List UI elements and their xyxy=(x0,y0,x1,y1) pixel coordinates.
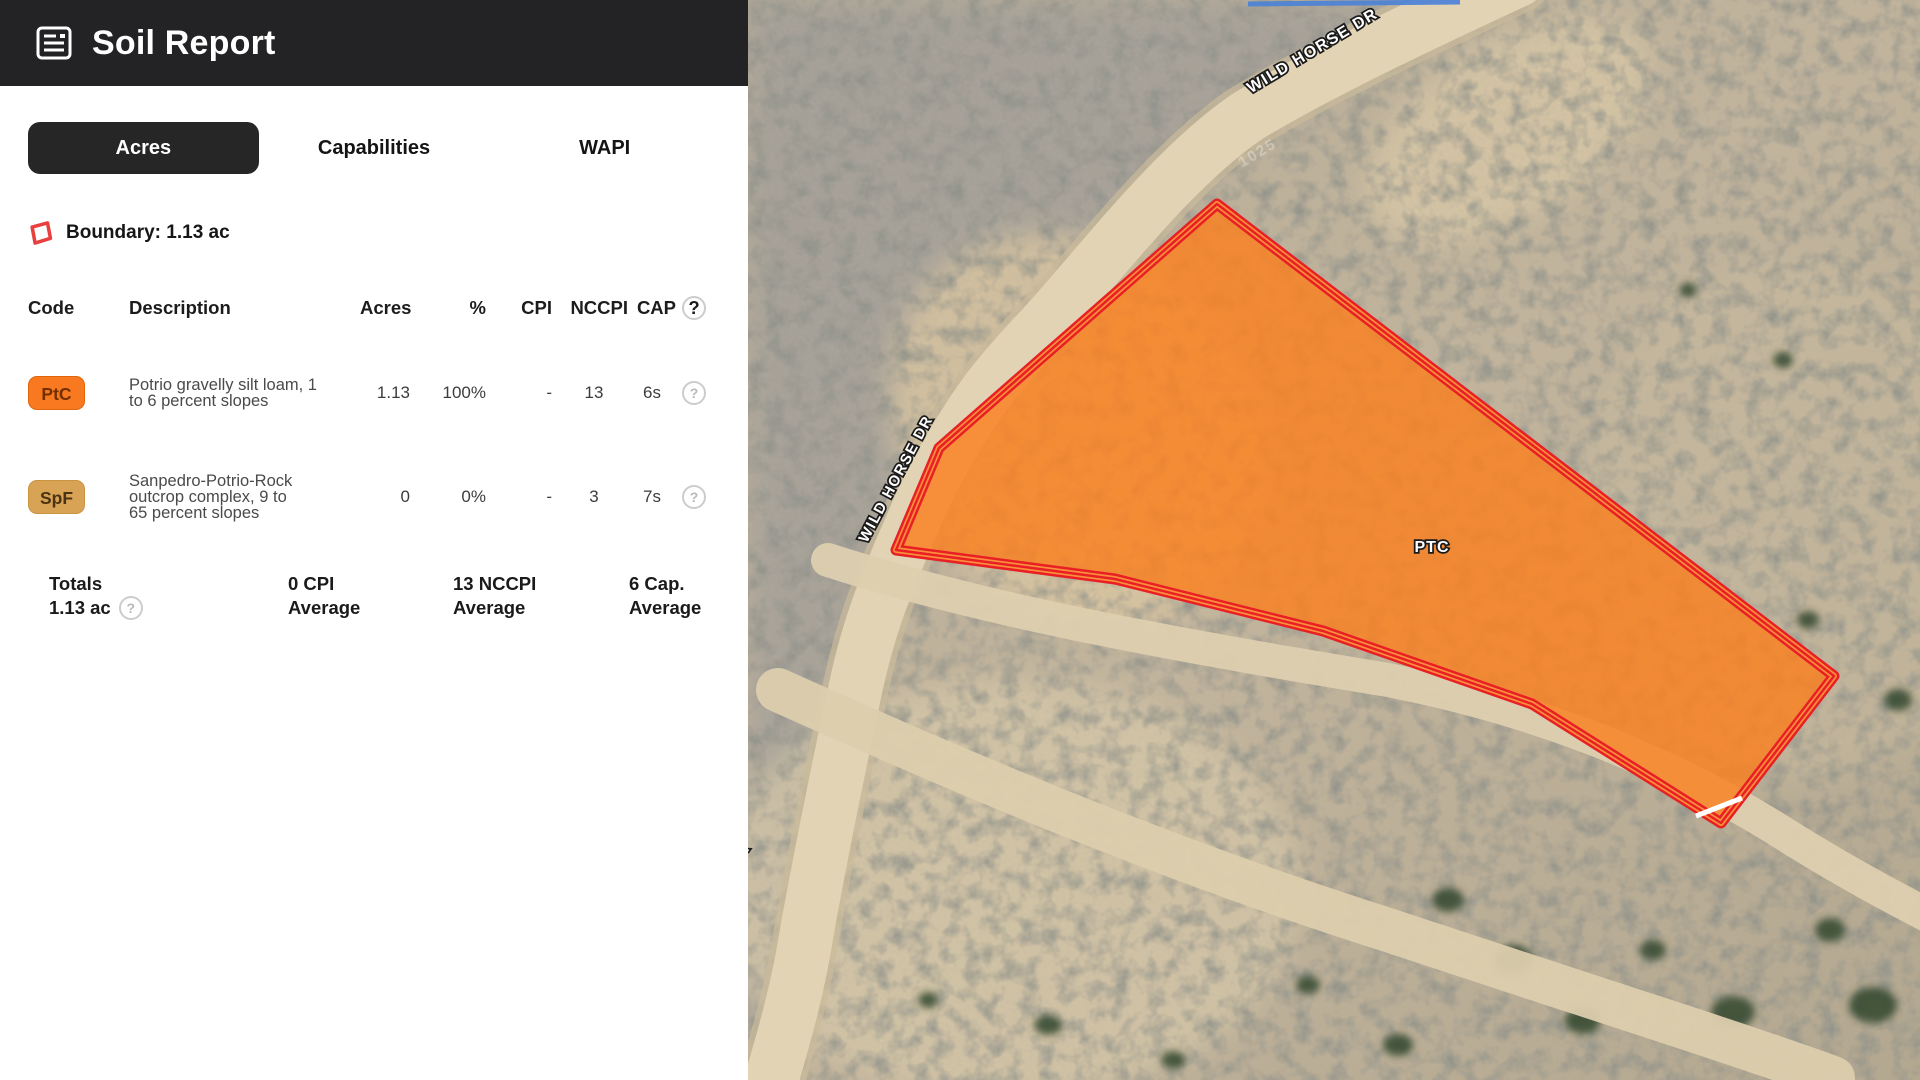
col-acres: Acres xyxy=(360,297,410,319)
acres-value: 0 xyxy=(360,487,410,507)
report-icon xyxy=(34,23,74,63)
col-percent: % xyxy=(410,297,486,319)
soil-description: Sanpedro-Potrio-Rock outcrop complex, 9 … xyxy=(120,473,301,521)
totals-acres-value: 1.13 ac xyxy=(49,596,111,620)
col-code: Code xyxy=(28,297,120,319)
soil-report-panel: Soil Report Acres Capabilities WAPI Boun… xyxy=(0,0,748,1080)
totals-cap-average: 6 Cap. Average xyxy=(629,572,713,620)
tab-capabilities[interactable]: Capabilities xyxy=(259,122,490,174)
panel-header: Soil Report xyxy=(0,0,748,86)
totals-cpi-average: 0 CPI Average xyxy=(288,572,372,620)
soil-description: Potrio gravelly silt loam, 1 to 6 percen… xyxy=(120,377,334,409)
cpi-value: - xyxy=(486,383,560,403)
totals-label: Totals xyxy=(49,572,143,596)
row-help-icon[interactable]: ? xyxy=(682,381,706,405)
cap-value: 7s xyxy=(628,487,676,507)
cap-value: 6s xyxy=(628,383,676,403)
tab-wapi[interactable]: WAPI xyxy=(489,122,720,174)
soil-code-badge-spf: SpF xyxy=(28,480,85,514)
totals-nccpi-average: 13 NCCPI Average xyxy=(453,572,549,620)
col-cap: CAP xyxy=(628,297,676,319)
table-row-ptc: PtC Potrio gravelly silt loam, 1 to 6 pe… xyxy=(28,366,720,420)
soil-report-app: Soil Report Acres Capabilities WAPI Boun… xyxy=(0,0,1920,1080)
boundary-row: Boundary: 1.13 ac xyxy=(28,220,230,246)
col-cpi: CPI xyxy=(486,297,560,319)
map-blue-line xyxy=(1248,2,1460,4)
col-nccpi: NCCPI xyxy=(560,297,628,319)
percent-value: 100% xyxy=(410,383,486,403)
boundary-label: Boundary: 1.13 ac xyxy=(66,222,230,244)
satellite-map[interactable]: WILD HORSE DR WILD HORSE DR WILD HORSE D… xyxy=(748,0,1920,1080)
totals-acres-block: Totals 1.13 ac ? xyxy=(49,572,143,620)
tab-acres[interactable]: Acres xyxy=(28,122,259,174)
nccpi-value: 13 xyxy=(560,383,628,403)
soil-code-badge-ptc: PtC xyxy=(28,376,85,410)
page-title: Soil Report xyxy=(92,24,276,63)
percent-value: 0% xyxy=(410,487,486,507)
boundary-polygon-icon xyxy=(28,220,54,246)
row-help-icon[interactable]: ? xyxy=(682,485,706,509)
table-header: Code Description Acres % CPI NCCPI CAP ? xyxy=(28,296,720,320)
acres-value: 1.13 xyxy=(360,383,410,403)
parcel-soil-label-ptc: PTC xyxy=(1415,539,1450,556)
col-description: Description xyxy=(120,297,360,319)
table-row-spf: SpF Sanpedro-Potrio-Rock outcrop complex… xyxy=(28,462,720,532)
nccpi-value: 3 xyxy=(560,487,628,507)
tab-bar: Acres Capabilities WAPI xyxy=(28,122,720,174)
header-help-icon[interactable]: ? xyxy=(682,296,706,320)
totals-help-icon[interactable]: ? xyxy=(119,596,143,620)
cpi-value: - xyxy=(486,487,560,507)
